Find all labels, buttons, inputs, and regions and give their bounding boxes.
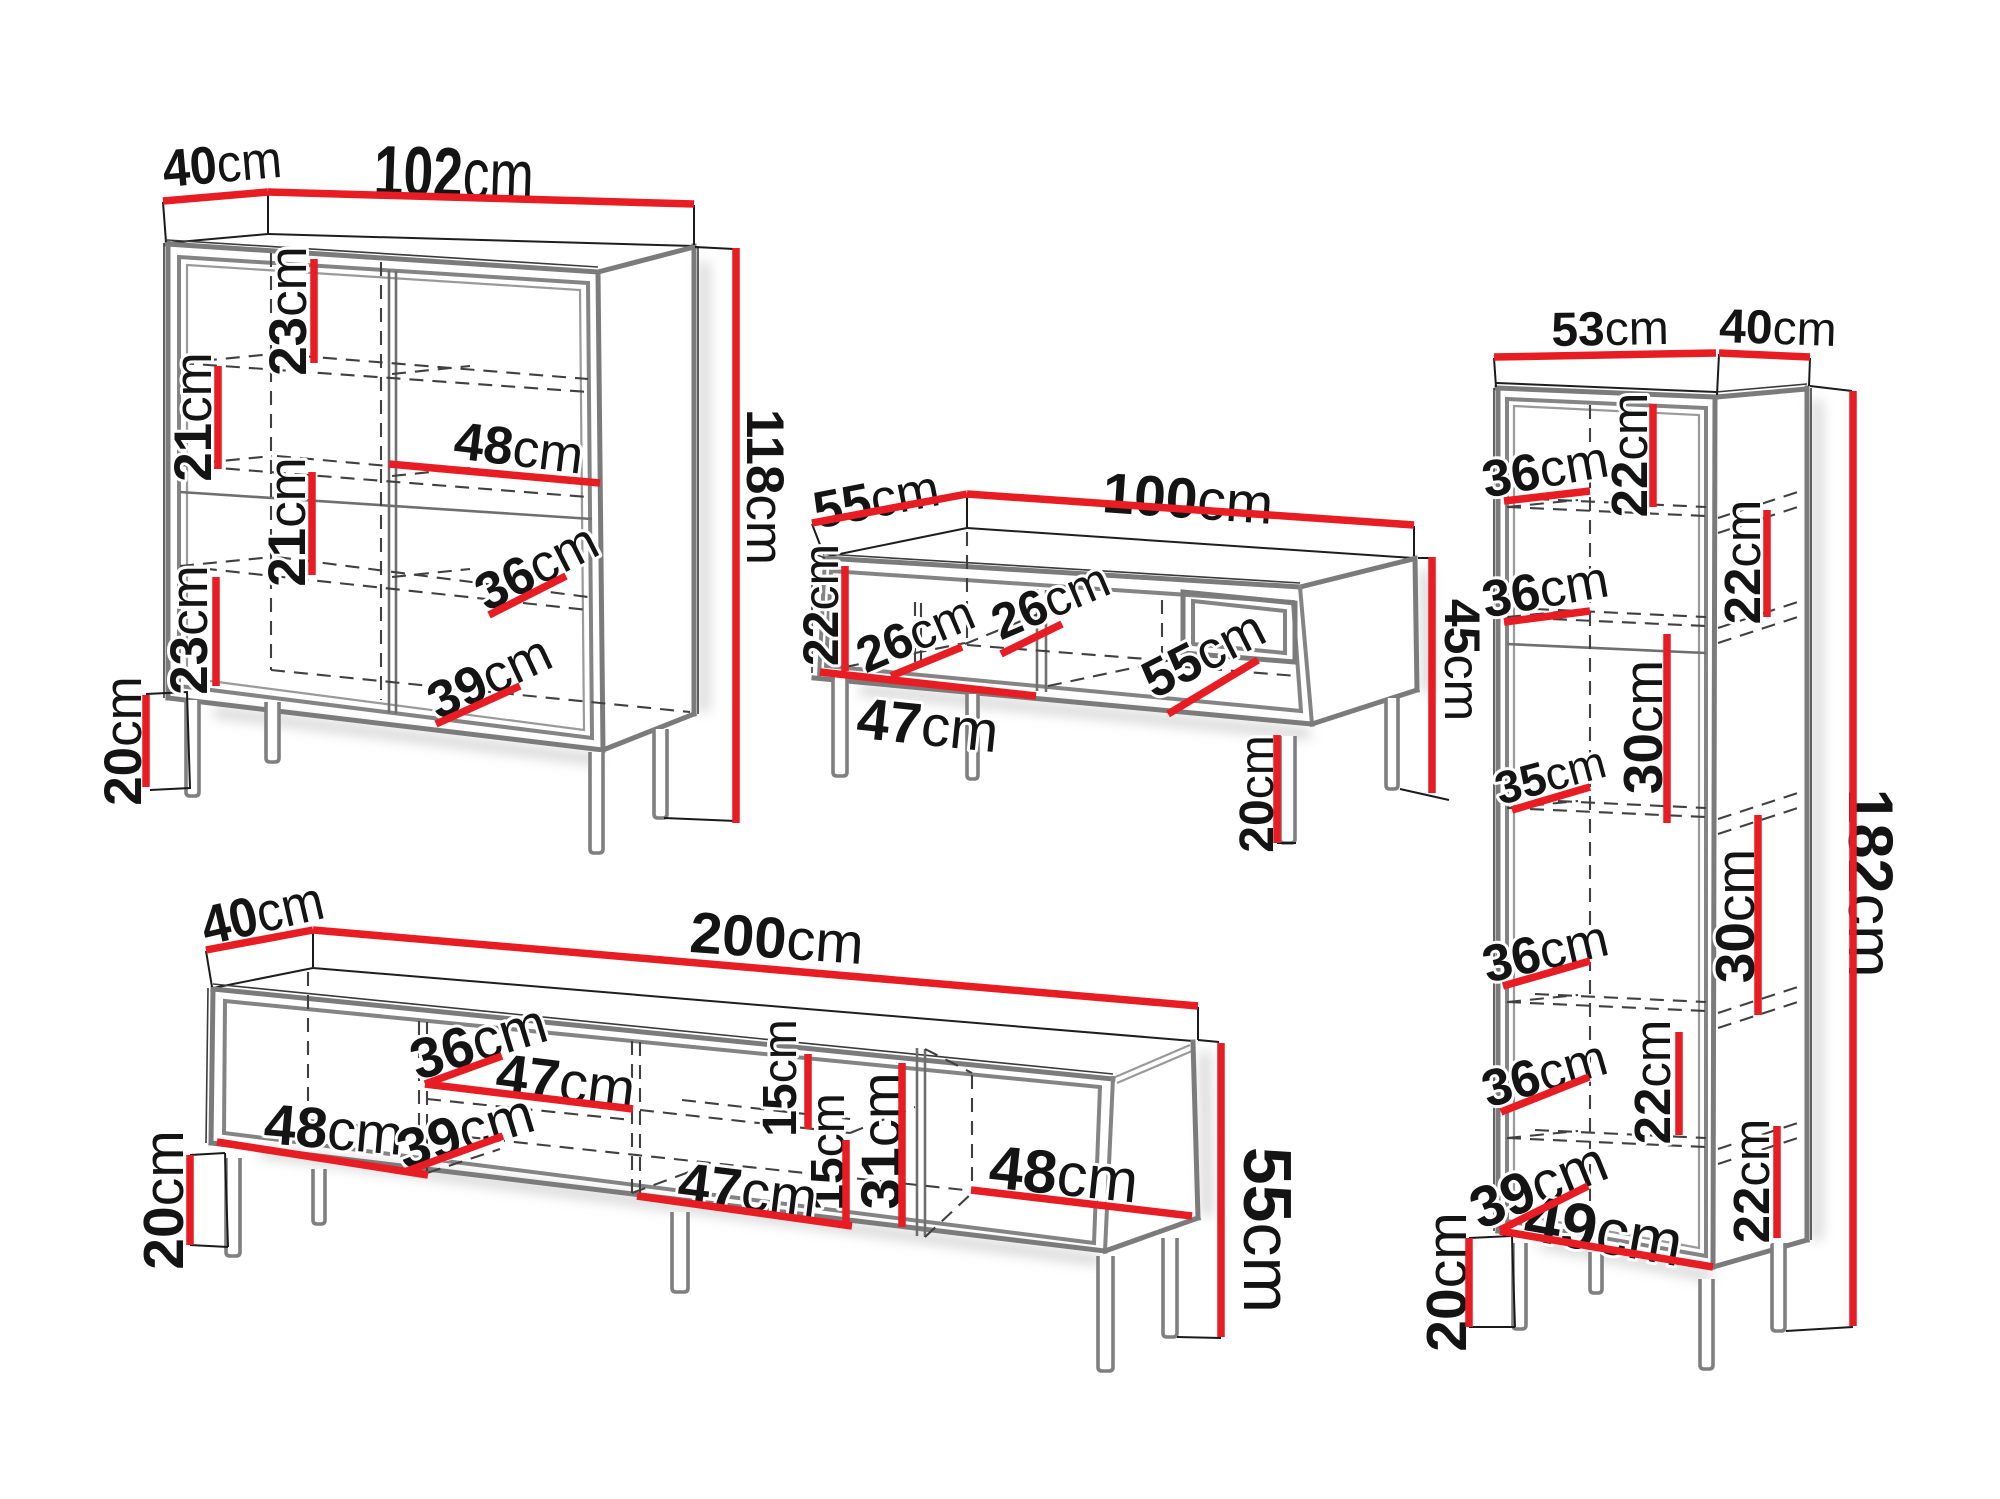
svg-text:22cm: 22cm	[1714, 500, 1771, 625]
svg-text:21cm: 21cm	[258, 457, 317, 587]
svg-text:23cm: 23cm	[259, 246, 318, 376]
svg-text:182cm: 182cm	[1835, 788, 1905, 977]
svg-text:118cm: 118cm	[735, 409, 794, 565]
svg-text:55cm: 55cm	[1229, 1147, 1305, 1313]
svg-text:22cm: 22cm	[1723, 1119, 1780, 1244]
svg-text:40cm: 40cm	[1718, 300, 1837, 357]
svg-text:23cm: 23cm	[160, 565, 219, 695]
svg-text:102cm: 102cm	[373, 132, 536, 217]
svg-text:22cm: 22cm	[1624, 1020, 1681, 1145]
svg-text:22cm: 22cm	[793, 544, 849, 666]
svg-text:53cm: 53cm	[1551, 302, 1669, 357]
svg-text:21cm: 21cm	[164, 352, 223, 482]
svg-text:100cm: 100cm	[1100, 461, 1275, 537]
svg-text:45cm: 45cm	[1434, 599, 1490, 721]
svg-text:15cm: 15cm	[754, 1019, 807, 1136]
svg-text:40cm: 40cm	[160, 129, 284, 198]
